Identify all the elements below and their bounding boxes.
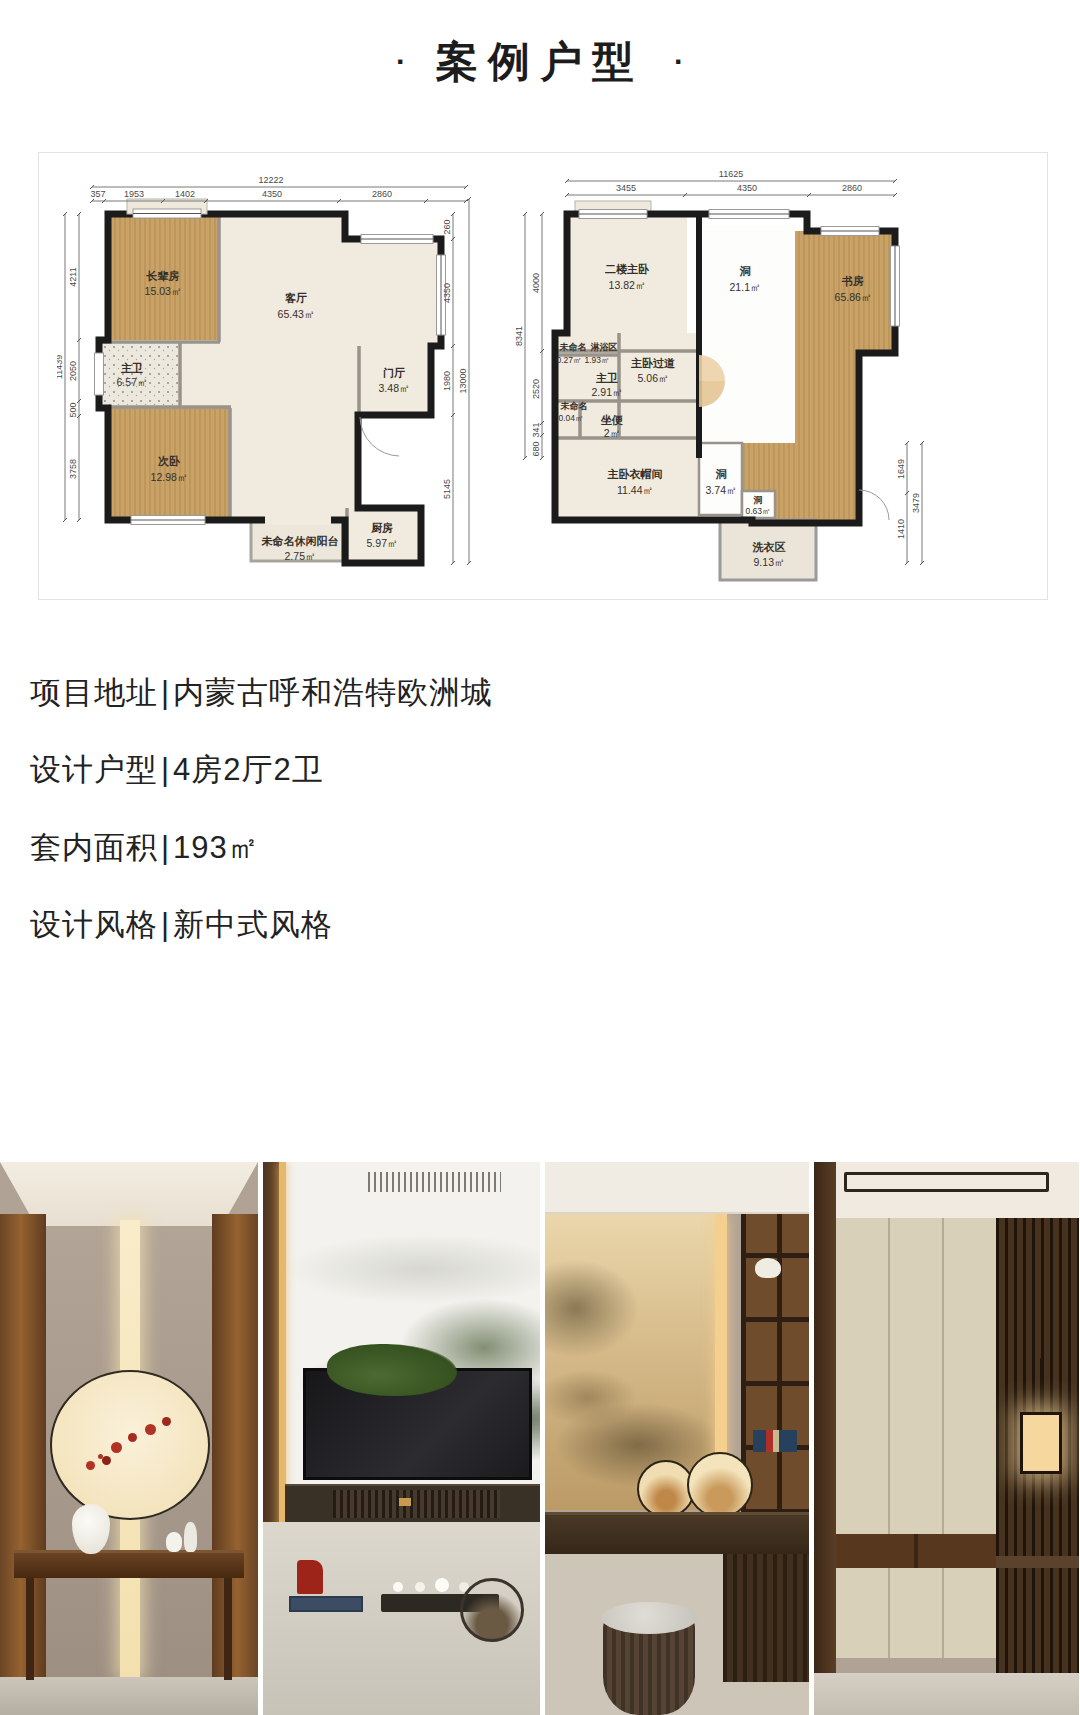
photo-wardrobe[interactable]: [814, 1162, 1079, 1715]
section-title: · 案例户型 ·: [0, 34, 1080, 90]
svg-text:3455: 3455: [616, 183, 636, 193]
tea-set: [393, 1582, 403, 1592]
floor-plan-first-floor: 长辈房 15.03㎡ 客厅 65.43㎡ 主卫 6.57㎡ 次卧 12.98㎡ …: [57, 159, 529, 595]
svg-text:260: 260: [442, 219, 452, 234]
svg-text:洞: 洞: [753, 495, 763, 505]
wardrobe-drawer-band: [836, 1534, 996, 1568]
photo-entry-hallway[interactable]: [0, 1162, 258, 1715]
ring-ornament: [460, 1578, 524, 1642]
svg-text:6.57㎡: 6.57㎡: [117, 376, 148, 388]
svg-text:未命名: 未命名: [560, 401, 588, 411]
svg-text:11625: 11625: [719, 169, 743, 179]
svg-text:主卧衣帽间: 主卧衣帽间: [608, 468, 663, 480]
table-leg: [224, 1578, 232, 1680]
svg-text:2860: 2860: [842, 183, 862, 193]
svg-text:9.13㎡: 9.13㎡: [754, 556, 785, 568]
svg-text:341: 341: [531, 422, 541, 437]
flower-branch: [98, 1454, 103, 1459]
svg-text:11.44㎡: 11.44㎡: [617, 484, 653, 496]
books: [289, 1596, 363, 1612]
mural-mountains: [545, 1214, 715, 1510]
svg-text:主卫: 主卫: [596, 372, 618, 384]
wardrobe-doors: [836, 1218, 996, 1658]
sculpture: [755, 1258, 781, 1278]
svg-text:1980: 1980: [442, 371, 452, 391]
svg-text:主卧过道: 主卧过道: [631, 357, 676, 369]
svg-text:1649: 1649: [896, 459, 906, 479]
svg-text:2.91㎡: 2.91㎡: [592, 386, 623, 398]
separator: |: [161, 907, 170, 942]
svg-text:1953: 1953: [124, 189, 144, 199]
svg-text:门厅: 门厅: [383, 367, 405, 379]
info-label: 设计户型: [30, 752, 158, 787]
info-label: 套内面积: [30, 830, 158, 865]
svg-text:15.03㎡: 15.03㎡: [145, 285, 182, 297]
desk: [545, 1512, 809, 1554]
hanging-decor: [368, 1172, 501, 1192]
title-left-dot: ·: [396, 45, 406, 79]
round-fan-decor: [687, 1452, 753, 1518]
bookshelf: [741, 1198, 809, 1514]
svg-text:4000: 4000: [531, 273, 541, 293]
photo-gallery: [0, 1162, 1080, 1715]
stool-cushion: [601, 1602, 697, 1634]
svg-text:4211: 4211: [68, 267, 78, 286]
gold-knob: [399, 1498, 411, 1506]
wall-lantern: [1020, 1412, 1062, 1474]
svg-text:5.06㎡: 5.06㎡: [638, 372, 669, 384]
svg-text:书房: 书房: [841, 275, 864, 287]
page-title: 案例户型: [436, 34, 644, 90]
svg-text:洞: 洞: [716, 468, 727, 480]
info-value: 内蒙古呼和浩特欧洲城: [173, 675, 493, 710]
svg-text:坐便: 坐便: [600, 414, 623, 426]
svg-text:2050: 2050: [68, 361, 78, 381]
floor: [0, 1677, 258, 1715]
console-table: [14, 1550, 244, 1578]
title-right-dot: ·: [674, 45, 684, 79]
table-leg: [26, 1578, 34, 1680]
svg-text:4350: 4350: [737, 183, 757, 193]
svg-text:21.1㎡: 21.1㎡: [730, 281, 761, 293]
books: [753, 1430, 797, 1452]
svg-text:长辈房: 长辈房: [146, 270, 180, 282]
svg-text:厨房: 厨房: [370, 522, 393, 534]
svg-text:0.63㎡: 0.63㎡: [745, 506, 770, 516]
floor-plan-second-floor: 二楼主卧 13.82㎡ 洞 21.1㎡ 书房 65.86㎡ 未命名 淋浴区 0.…: [509, 159, 981, 595]
svg-text:5.97㎡: 5.97㎡: [367, 537, 398, 549]
info-value: 新中式风格: [173, 907, 333, 942]
svg-text:洞: 洞: [740, 265, 751, 277]
svg-text:2860: 2860: [372, 189, 392, 199]
svg-text:3479: 3479: [911, 493, 921, 513]
svg-text:1402: 1402: [175, 189, 195, 199]
svg-text:357: 357: [90, 189, 105, 199]
photo-living-room-tv-wall[interactable]: [263, 1162, 540, 1715]
svg-text:65.86㎡: 65.86㎡: [835, 291, 872, 303]
svg-text:2.75㎡: 2.75㎡: [285, 550, 316, 562]
svg-text:2520: 2520: [531, 379, 541, 399]
svg-text:主卫: 主卫: [121, 362, 143, 374]
separator: |: [161, 830, 170, 865]
svg-text:12222: 12222: [258, 175, 283, 185]
console-slats: [333, 1490, 500, 1518]
svg-text:4350: 4350: [442, 283, 452, 303]
svg-text:2㎡: 2㎡: [604, 427, 620, 439]
info-line-area: 套内面积|193㎡: [30, 827, 260, 869]
info-label: 项目地址: [30, 675, 158, 710]
wood-panel-left: [0, 1214, 46, 1685]
svg-text:0.27㎡: 0.27㎡: [556, 355, 581, 365]
wood-panel-right: [212, 1214, 258, 1685]
floor-plan-figure[interactable]: 长辈房 15.03㎡ 客厅 65.43㎡ 主卫 6.57㎡ 次卧 12.98㎡ …: [38, 152, 1048, 600]
svg-text:4350: 4350: [262, 189, 282, 199]
svg-text:未命名: 未命名: [559, 342, 587, 352]
svg-text:二楼主卧: 二楼主卧: [605, 263, 650, 275]
figurine: [166, 1532, 182, 1552]
info-value: 4房2厅2卫: [173, 752, 324, 787]
figurine: [184, 1522, 197, 1552]
svg-text:1.93㎡: 1.93㎡: [584, 355, 609, 365]
svg-text:12.98㎡: 12.98㎡: [151, 471, 188, 483]
svg-text:8341: 8341: [514, 326, 524, 346]
svg-text:680: 680: [531, 441, 541, 456]
counter: [996, 1556, 1079, 1568]
svg-text:65.43㎡: 65.43㎡: [278, 308, 315, 320]
ceiling: [545, 1162, 809, 1214]
svg-text:3.48㎡: 3.48㎡: [379, 382, 410, 394]
svg-text:11439: 11439: [57, 355, 64, 379]
separator: |: [161, 675, 170, 710]
svg-text:次卧: 次卧: [158, 455, 181, 467]
svg-text:13000: 13000: [458, 368, 468, 393]
red-horse-figurine: [297, 1560, 323, 1594]
svg-text:洗衣区: 洗衣区: [752, 541, 786, 553]
svg-text:5145: 5145: [442, 479, 452, 499]
info-line-style: 设计风格|新中式风格: [30, 904, 333, 946]
svg-text:1410: 1410: [896, 519, 906, 539]
info-label: 设计风格: [30, 907, 158, 942]
svg-text:13.82㎡: 13.82㎡: [609, 279, 646, 291]
svg-text:客厅: 客厅: [284, 292, 307, 304]
svg-text:500: 500: [68, 402, 78, 417]
article-page: · 案例户型 ·: [0, 0, 1080, 1715]
info-line-address: 项目地址|内蒙古呼和浩特欧洲城: [30, 672, 493, 714]
separator: |: [161, 752, 170, 787]
info-line-layout: 设计户型|4房2厅2卫: [30, 749, 324, 791]
ceiling-recess: [844, 1172, 1049, 1192]
svg-text:未命名休闲阳台: 未命名休闲阳台: [261, 535, 339, 547]
svg-text:3.74㎡: 3.74㎡: [706, 484, 737, 496]
wood-panel-left: [814, 1162, 836, 1715]
photo-study-room[interactable]: [545, 1162, 809, 1715]
moon-light: [50, 1370, 210, 1520]
svg-text:3758: 3758: [68, 459, 78, 479]
info-value: 193㎡: [173, 830, 260, 865]
svg-text:0.04㎡: 0.04㎡: [558, 413, 583, 423]
svg-text:淋浴区: 淋浴区: [591, 342, 618, 352]
floor: [814, 1673, 1079, 1715]
side-cabinet: [723, 1554, 809, 1682]
lamp-rod: [1040, 1358, 1043, 1412]
